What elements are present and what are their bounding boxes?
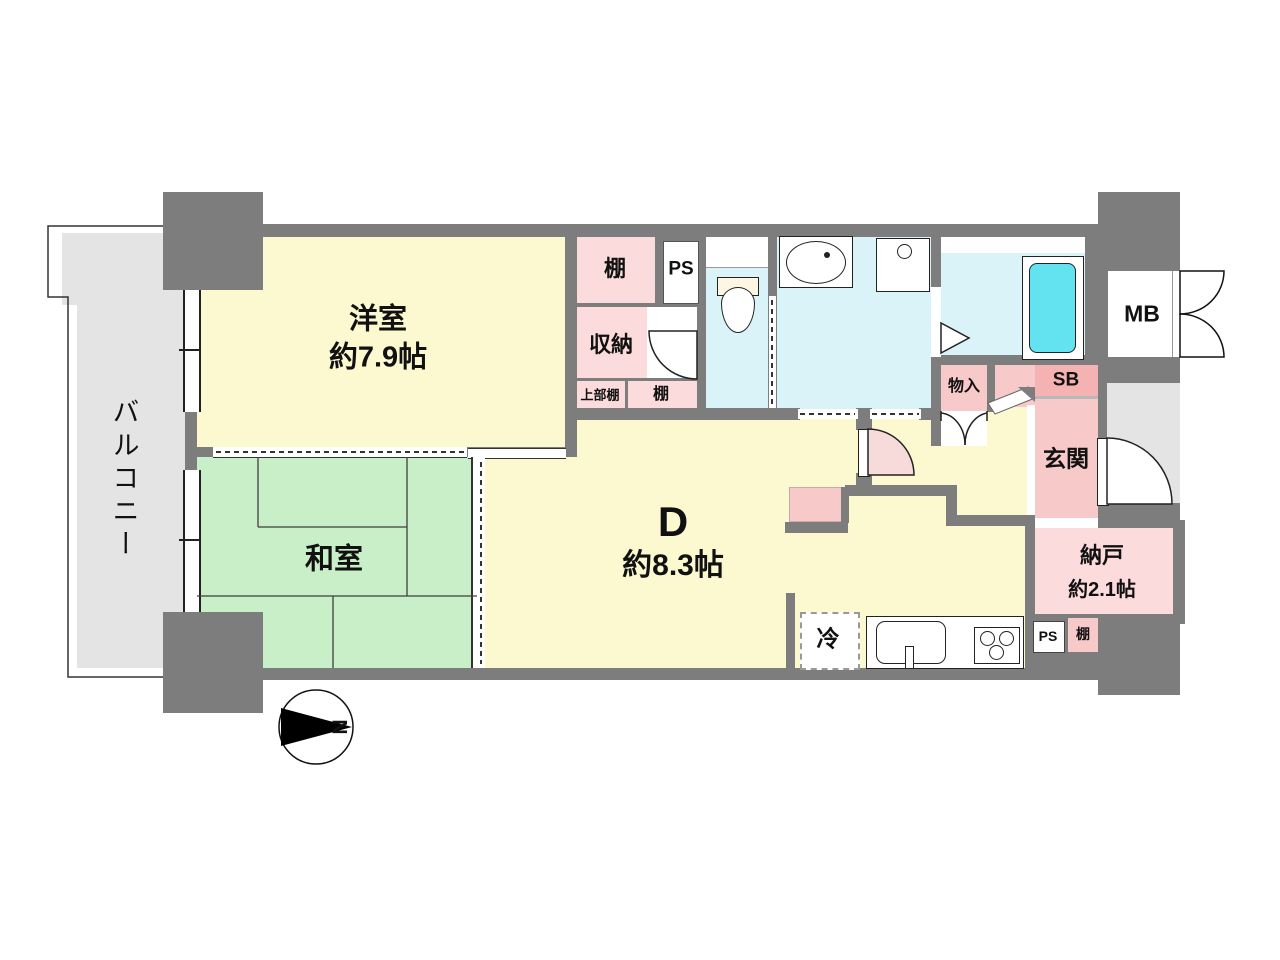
wall-right-strip-a [1098,383,1107,438]
compass-north-label: N [328,719,351,734]
swing-door-leaf-hall [858,429,870,477]
wall-zigzag-a [845,485,957,496]
wall-storage-small-right [987,363,995,412]
bathroom-top-strip [941,237,1085,253]
closet-door-alcove [647,307,697,378]
closet-divider-c [625,381,628,408]
label-storage-room: 納戸 [1080,545,1124,567]
entrance-step-bottom [1033,518,1098,528]
pillar-bottom-right [1098,615,1180,695]
label-ps-top: PS [668,260,693,279]
wall-kitchen-stub [786,593,795,668]
sliding-door-toilet [769,296,776,408]
storage-room-floor [1033,528,1173,614]
kitchen-faucet [905,646,914,669]
sliding-door-washroom-b [870,409,921,419]
label-western-room-size: 約7.9帖 [329,344,427,373]
wall-closet-bottom [565,408,706,420]
label-dining-size: 約8.3帖 [622,551,724,581]
sink-basin-symbol [786,241,846,284]
label-dining: D [658,501,688,543]
double-door-meter-box [1180,271,1224,357]
stove-burner [999,631,1014,646]
counter-cupboard [789,487,845,522]
closet-divider-a [577,303,657,307]
entrance-upper-connector [995,365,1035,407]
label-japanese-room: 和室 [305,546,363,575]
pillar-bottom-left [163,612,263,713]
wall-toilet-bottom [700,408,800,420]
window [183,470,201,612]
entrance-door-leaf [1097,438,1109,506]
wall-zigzag-c [946,515,1035,526]
bathtub-symbol [1029,263,1076,353]
label-storage-small: 物入 [948,379,980,395]
window-tick [179,539,201,541]
meter-box-door-line [1172,271,1173,357]
label-closet: 収納 [589,334,633,356]
wall-right-strip-b [1098,503,1180,528]
wall-cupboard-side [841,487,849,523]
wall-bottom [163,668,1105,680]
sink-faucet-dot [824,252,830,258]
window-tick [179,349,201,351]
wall-western-right [565,237,577,457]
label-ps-bottom: PS [1039,629,1058,643]
sliding-door-japanese-dining [471,457,485,668]
compass: N [279,690,353,764]
label-shelf-mid: 棚 [653,387,669,403]
label-storage-room-size: 約2.1帖 [1068,580,1136,600]
folding-door-bath [931,287,941,357]
wall-storage-small-left [931,363,941,446]
storage-small-doors-area [941,411,987,446]
corridor-outside [1107,383,1180,523]
label-fridge: 冷 [817,628,840,651]
label-shelf-top: 棚 [604,258,626,280]
stove-burner [980,631,995,646]
stove-burner [989,645,1004,660]
label-balcony: バルコニー [110,398,137,563]
label-western-room: 洋室 [349,306,407,335]
wall-entrance-left-lower [1025,524,1035,614]
closet-divider-b [577,378,706,381]
pillar-top-right [1098,192,1180,271]
wall-storage-room-right [1173,520,1185,620]
wall-right-upper [1098,271,1108,357]
floor-plan: N バルコニー 洋室 約7.9帖 和室 D 約8.3帖 棚 PS 収納 上部棚 … [0,0,1280,960]
label-entrance: 玄関 [1043,448,1089,471]
wall-right-band [1098,357,1180,383]
wall-bath-right [1085,237,1098,363]
entrance-step-vertical [1027,405,1035,518]
sliding-door-washroom-a [798,409,858,419]
toilet-room-top-shelf [706,237,768,268]
washer-dial [897,244,912,259]
label-mb: MB [1124,303,1160,326]
wall-top [163,224,1180,237]
label-sb: SB [1053,371,1079,390]
wall-washroom-bottom-right [919,408,941,420]
label-shelf-bottom: 棚 [1076,627,1090,641]
label-upper-shelf: 上部棚 [580,389,619,402]
sliding-door-western-japanese [213,447,467,458]
pillar-top-left [163,192,263,290]
wall-cupboard-bottom [785,522,848,533]
window [183,290,201,412]
